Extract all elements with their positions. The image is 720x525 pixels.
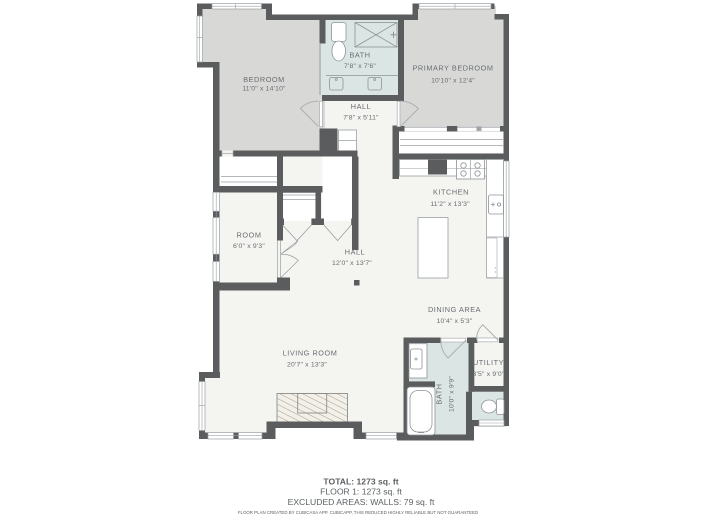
- svg-text:ROOM: ROOM: [237, 231, 262, 240]
- svg-text:11'2" x 13'3": 11'2" x 13'3": [430, 201, 470, 208]
- svg-text:10'4" x 5'3": 10'4" x 5'3": [437, 318, 473, 325]
- svg-text:BEDROOM: BEDROOM: [243, 75, 285, 84]
- svg-text:10'0" x 9'9": 10'0" x 9'9": [449, 376, 456, 412]
- svg-text:HALL: HALL: [345, 248, 365, 257]
- svg-text:7'8" x 7'6": 7'8" x 7'6": [344, 63, 376, 70]
- svg-text:BATH: BATH: [435, 383, 444, 404]
- svg-text:11'0" x 14'10": 11'0" x 14'10": [242, 86, 286, 93]
- svg-text:UTILITY: UTILITY: [473, 358, 504, 367]
- svg-text:HALL: HALL: [351, 102, 371, 111]
- svg-text:FLOOR 1: 1273 sq. ft: FLOOR 1: 1273 sq. ft: [320, 487, 402, 497]
- svg-text:6'0" x 9'3": 6'0" x 9'3": [233, 243, 265, 250]
- svg-text:3'5" x 9'0": 3'5" x 9'0": [473, 371, 505, 378]
- svg-text:EXCLUDED AREAS: WALLS: 79 sq.: EXCLUDED AREAS: WALLS: 79 sq. ft: [288, 497, 435, 507]
- svg-text:10'10" x 12'4": 10'10" x 12'4": [431, 78, 475, 85]
- svg-text:12'0" x 13'7": 12'0" x 13'7": [332, 260, 372, 267]
- svg-text:FLOOR PLAN CREATED BY CUBICASA: FLOOR PLAN CREATED BY CUBICASA APP. CUBI…: [238, 510, 478, 515]
- svg-text:TOTAL: 1273 sq. ft: TOTAL: 1273 sq. ft: [323, 477, 398, 487]
- svg-text:DINING AREA: DINING AREA: [428, 305, 481, 314]
- svg-text:PRIMARY BEDROOM: PRIMARY BEDROOM: [413, 64, 494, 73]
- svg-text:BATH: BATH: [349, 51, 370, 60]
- svg-text:KITCHEN: KITCHEN: [433, 188, 469, 197]
- svg-text:LIVING ROOM: LIVING ROOM: [283, 349, 338, 358]
- svg-text:7'8" x 5'11": 7'8" x 5'11": [343, 115, 379, 122]
- svg-text:20'7" x 13'3": 20'7" x 13'3": [287, 362, 327, 369]
